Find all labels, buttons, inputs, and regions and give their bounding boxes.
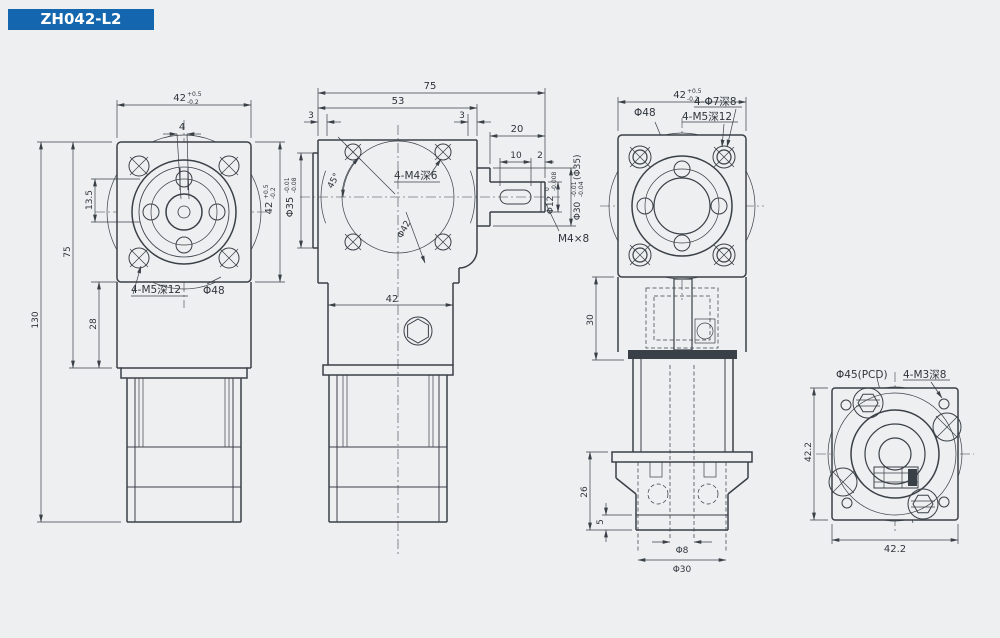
label-side-tapped-holes: 4-M4深6 xyxy=(394,170,438,182)
dim-pilot-dia: Φ35 xyxy=(285,197,296,218)
dim-back-width-sup: +0.5 xyxy=(687,88,702,95)
label-output-pcd: Φ45(PCD) xyxy=(836,369,888,381)
dim-front-width-sup: +0.5 xyxy=(187,91,202,98)
dim-hub-dia: Φ30 xyxy=(573,201,583,220)
label-back-tapped: 4-M5深12 xyxy=(682,111,732,123)
back-flange xyxy=(609,133,755,279)
dim-leg-width: 42 xyxy=(386,294,399,305)
dim-back-motor-height: 26 xyxy=(580,486,590,498)
page-title: ZH042-L2 xyxy=(41,10,122,28)
dim-hub-sub: -0.04 xyxy=(578,181,585,197)
dim-back-width: 42 xyxy=(673,90,686,101)
motor-mounting-plate xyxy=(628,350,737,359)
dim-shaft-sup: 0 xyxy=(544,187,551,191)
dim-side-edge-right: 3 xyxy=(459,111,465,121)
dim-pilot-sup: -0.01 xyxy=(284,177,291,193)
dim-shaft-dia: Φ12 xyxy=(546,196,556,215)
dim-output-width: 42.2 xyxy=(884,544,906,555)
title-block: ZH042-L2 xyxy=(8,9,154,30)
dim-back-bore: Φ8 xyxy=(676,546,689,556)
dim-front-section-height: 28 xyxy=(89,318,99,330)
dim-side-total-length: 75 xyxy=(424,81,437,92)
output-flange xyxy=(828,387,962,521)
dim-output-height: 42.2 xyxy=(804,442,814,462)
front-flange xyxy=(107,135,261,289)
label-key-spec: M4×8 xyxy=(558,233,589,245)
dim-back-hub: Φ30 xyxy=(673,565,692,575)
technical-drawing: ZH042-L2 xyxy=(0,0,1000,638)
dim-side-housing-length: 53 xyxy=(392,96,405,107)
dim-front-body-height: 75 xyxy=(63,246,73,257)
dim-front-keyway: 4 xyxy=(179,122,185,133)
dim-front-height-sub: -0.2 xyxy=(270,187,277,199)
label-front-tapped-holes: 4-M5深12 xyxy=(131,284,181,296)
label-output-tapped: 4-M3深8 xyxy=(903,369,946,381)
sheet-background xyxy=(0,0,1000,638)
dim-front-width: 42 xyxy=(173,93,186,104)
label-back-cbore: 4-Φ7深8 xyxy=(694,96,737,108)
dim-key-length: 10 xyxy=(510,151,522,161)
dim-front-total-height: 130 xyxy=(31,311,41,328)
dim-front-width-sub: -0.2 xyxy=(187,99,199,106)
dim-key-offset: 2 xyxy=(537,151,543,161)
dim-back-cavity-height: 30 xyxy=(586,314,596,326)
label-front-boss: Φ48 xyxy=(203,285,225,297)
drawing-sheet: ZH042-L2 xyxy=(0,0,1000,638)
label-back-boss: Φ48 xyxy=(634,107,656,119)
dim-front-height: 42 xyxy=(264,202,275,215)
dim-shaft-length: 20 xyxy=(511,124,524,135)
dim-front-offset: 13.5 xyxy=(85,190,95,210)
dim-hub-note: (Φ35) xyxy=(573,154,583,180)
dim-front-height-sup: +0.5 xyxy=(263,184,270,199)
dim-side-edge-left: 3 xyxy=(308,111,314,121)
dim-shaft-sub: -0.008 xyxy=(551,171,558,191)
dim-pilot-sub: -0.08 xyxy=(291,177,298,193)
dim-back-step: 5 xyxy=(596,519,606,525)
dim-hub-sup: -0.01 xyxy=(571,181,578,197)
